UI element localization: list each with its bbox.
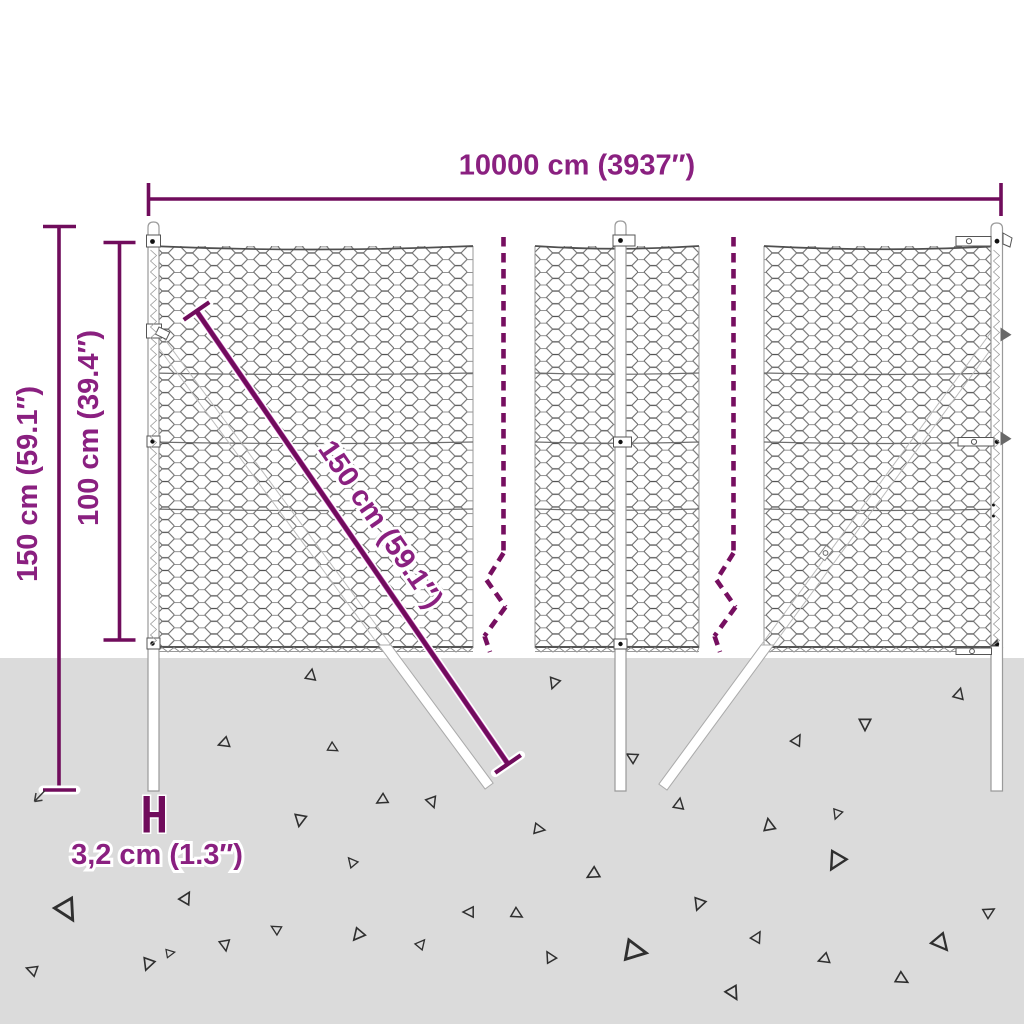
svg-text:3,2 cm (1.3″): 3,2 cm (1.3″) xyxy=(71,839,243,871)
svg-text:10000 cm (3937″): 10000 cm (3937″) xyxy=(459,150,695,182)
svg-text:100 cm (39.4″): 100 cm (39.4″) xyxy=(73,330,105,526)
svg-text:150 cm (59.1″): 150 cm (59.1″) xyxy=(12,386,44,582)
